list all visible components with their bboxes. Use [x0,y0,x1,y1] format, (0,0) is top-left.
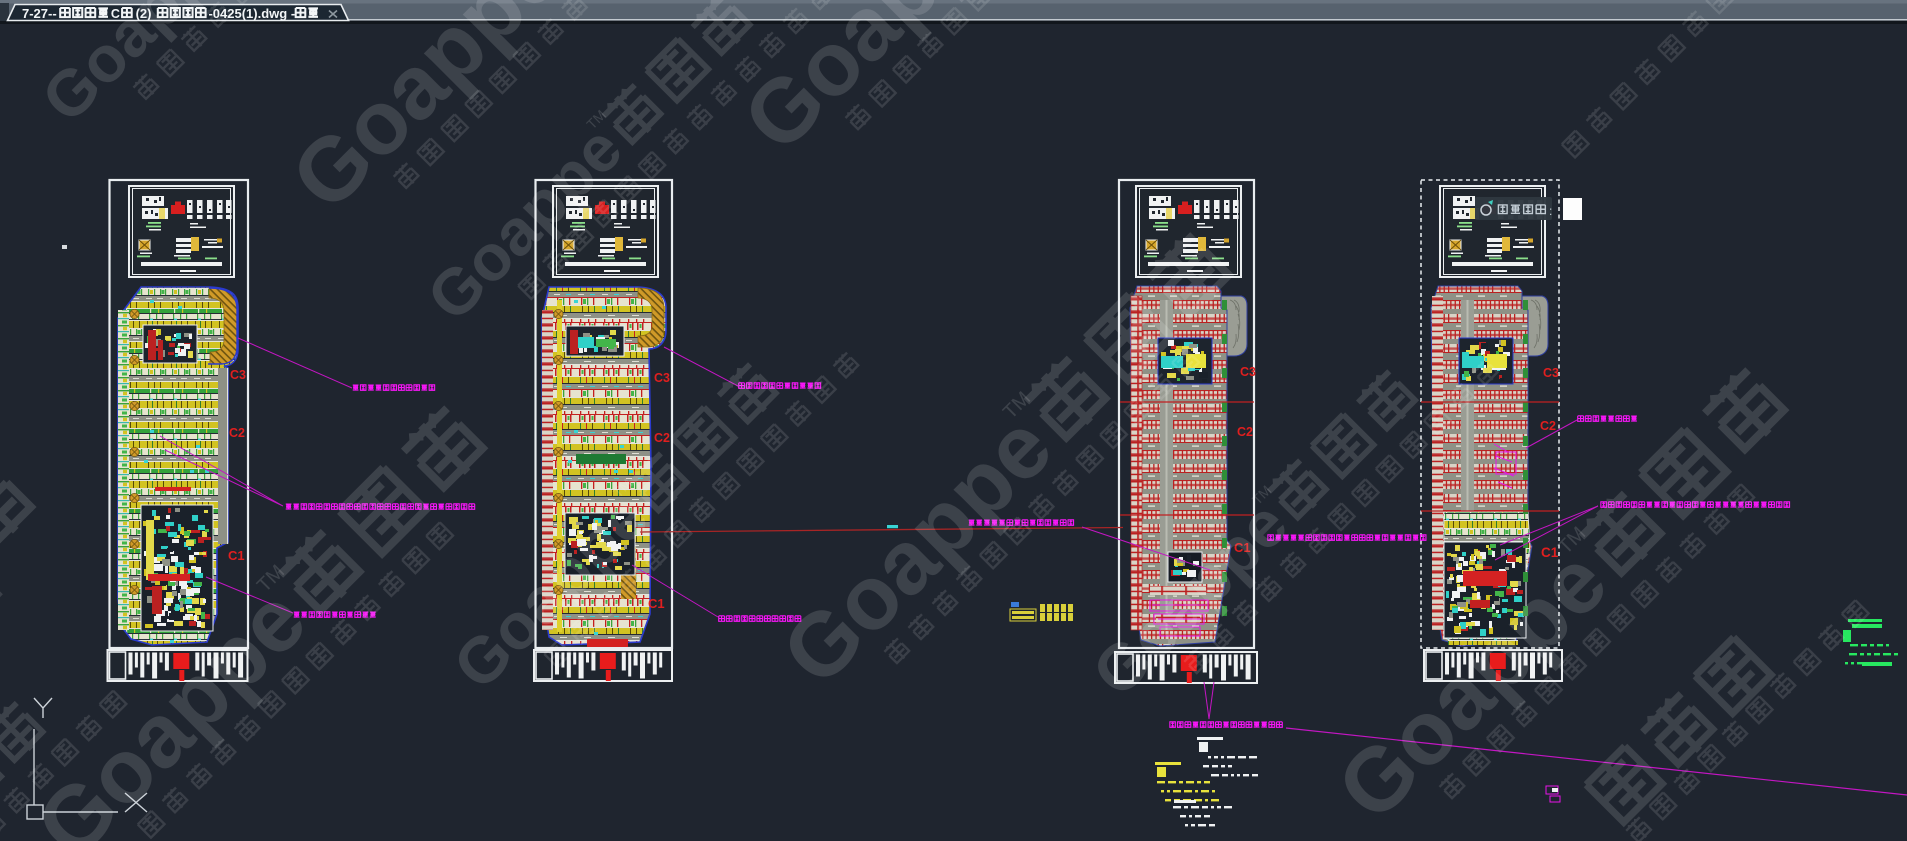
svg-text:C1: C1 [648,596,665,611]
svg-text:C2: C2 [1237,425,1253,439]
svg-text:C2: C2 [654,431,670,445]
svg-text::: : [1549,204,1552,218]
svg-text:C3: C3 [1240,365,1256,379]
svg-text:C2: C2 [1540,419,1556,433]
svg-text:C3: C3 [654,371,670,385]
svg-text:C2: C2 [229,426,245,440]
svg-text:C3: C3 [230,368,246,382]
svg-text:7-27--: 7-27-- [22,6,57,21]
svg-text:C3: C3 [1543,366,1559,380]
svg-text:C1: C1 [228,548,245,563]
